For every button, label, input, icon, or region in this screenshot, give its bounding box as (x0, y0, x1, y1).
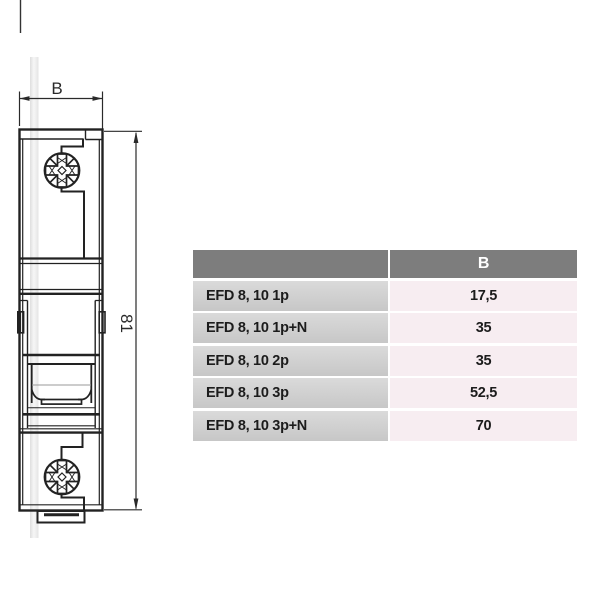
table-row-value: 35 (390, 313, 577, 343)
table-row-label: EFD 8, 10 1p (193, 281, 388, 311)
dimension-table: B EFD 8, 10 1p 17,5 EFD 8, 10 1p+N 35 EF… (193, 250, 577, 441)
height-dimension-label: 81 (117, 314, 136, 333)
din-rail-tab (38, 511, 85, 523)
side-clip-right (99, 312, 105, 333)
terminal-strap-top (62, 139, 84, 155)
table-header-b: B (390, 250, 577, 278)
arrow-right-icon (93, 96, 103, 101)
width-dimension-label: B (51, 79, 62, 98)
table-row-label: EFD 8, 10 3p (193, 378, 388, 408)
table-row-label: EFD 8, 10 3p+N (193, 411, 388, 441)
terminal-strap-bottom (62, 433, 83, 460)
table-row-value: 17,5 (390, 281, 577, 311)
screw-top-icon (45, 153, 80, 188)
toggle-lever (32, 390, 92, 405)
arrow-down-icon (134, 499, 139, 511)
arrow-up-icon (134, 132, 139, 144)
table-row-value: 70 (390, 411, 577, 441)
screw-bottom-icon (45, 460, 80, 495)
table-header-empty (193, 250, 388, 278)
table-row-label: EFD 8, 10 2p (193, 346, 388, 376)
table-row-value: 52,5 (390, 378, 577, 408)
arrow-left-icon (20, 96, 30, 101)
table-row-value: 35 (390, 346, 577, 376)
table-row-label: EFD 8, 10 1p+N (193, 313, 388, 343)
